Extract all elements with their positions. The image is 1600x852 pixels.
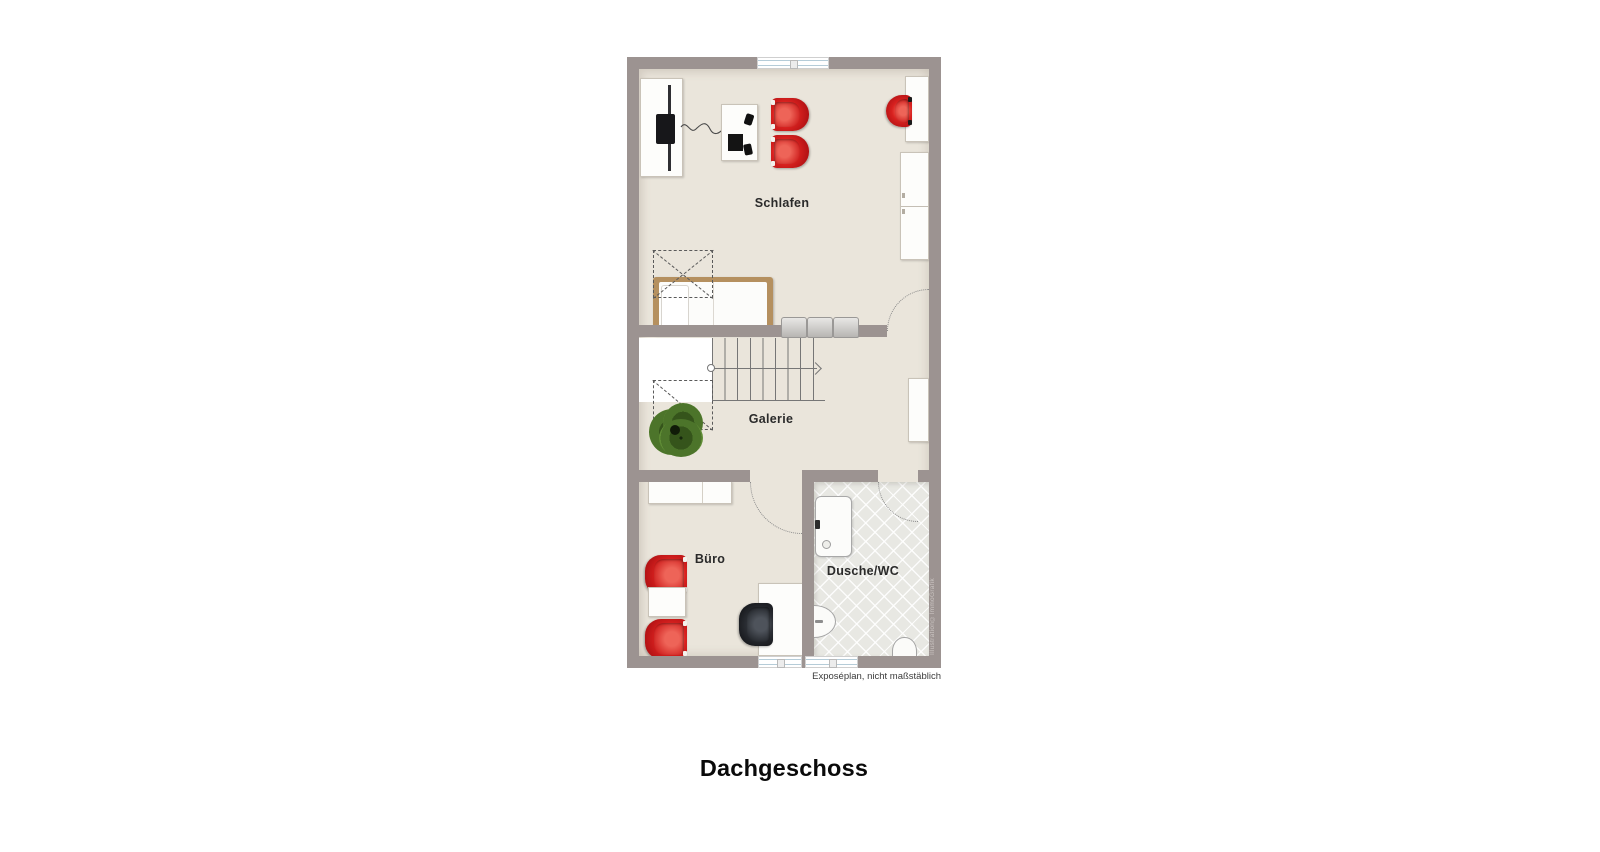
- gamepad: [743, 113, 754, 126]
- plan-caption: Exposéplan, nicht maßstäblich: [627, 671, 941, 682]
- media-table: [721, 104, 758, 161]
- staircase: [712, 338, 825, 401]
- wall-bottom: [858, 656, 941, 668]
- plant: [649, 403, 703, 457]
- dresser-segment: [781, 317, 807, 338]
- wall-gallery-bath: [802, 470, 878, 482]
- wall-top: [829, 57, 941, 69]
- armchair: [645, 619, 687, 659]
- wall-gallery-bath: [918, 470, 929, 482]
- room-label-galerie: Galerie: [749, 412, 794, 426]
- room-label-dusche-wc: Dusche/WC: [827, 564, 899, 578]
- window-top: [757, 57, 829, 69]
- stair-start-circle: [707, 364, 715, 372]
- illustration-watermark: Illustration©ImmoGrafik: [929, 563, 936, 655]
- dresser: [781, 317, 857, 336]
- plant-core: [670, 425, 680, 435]
- shower: [815, 496, 852, 557]
- room-label-buero: Büro: [695, 552, 725, 566]
- armchair: [771, 98, 809, 131]
- wall-bottom: [627, 656, 758, 668]
- game-console: [728, 134, 743, 151]
- side-table: [648, 587, 686, 617]
- cable: [679, 117, 725, 141]
- armchair: [771, 135, 809, 168]
- shelf-gallery: [908, 378, 929, 442]
- tv-board: [640, 78, 683, 177]
- room-label-schlafen: Schlafen: [755, 196, 810, 210]
- desk-chair-red: [886, 95, 912, 127]
- window-bottom-office: [758, 656, 802, 668]
- wardrobe: [900, 152, 929, 260]
- duvet-seam: [713, 282, 714, 330]
- wall-gallery-office: [639, 470, 750, 482]
- gamepad: [743, 143, 753, 155]
- stair-direction-line: [712, 368, 817, 369]
- floor-title: Dachgeschoss: [627, 755, 941, 782]
- floor-plan: Schlafen Galerie Büro Dusche/WC Illustra…: [627, 57, 941, 668]
- wall-left: [627, 57, 639, 668]
- tv-box: [656, 114, 675, 144]
- wall-office-bath: [802, 482, 814, 656]
- sideboard: [648, 481, 732, 504]
- wall-top: [627, 57, 757, 69]
- window-bottom-bath: [805, 656, 858, 668]
- dresser-segment: [807, 317, 833, 338]
- plant-foliage: [659, 419, 703, 457]
- dresser-segment: [833, 317, 859, 338]
- office-chair: [739, 603, 773, 646]
